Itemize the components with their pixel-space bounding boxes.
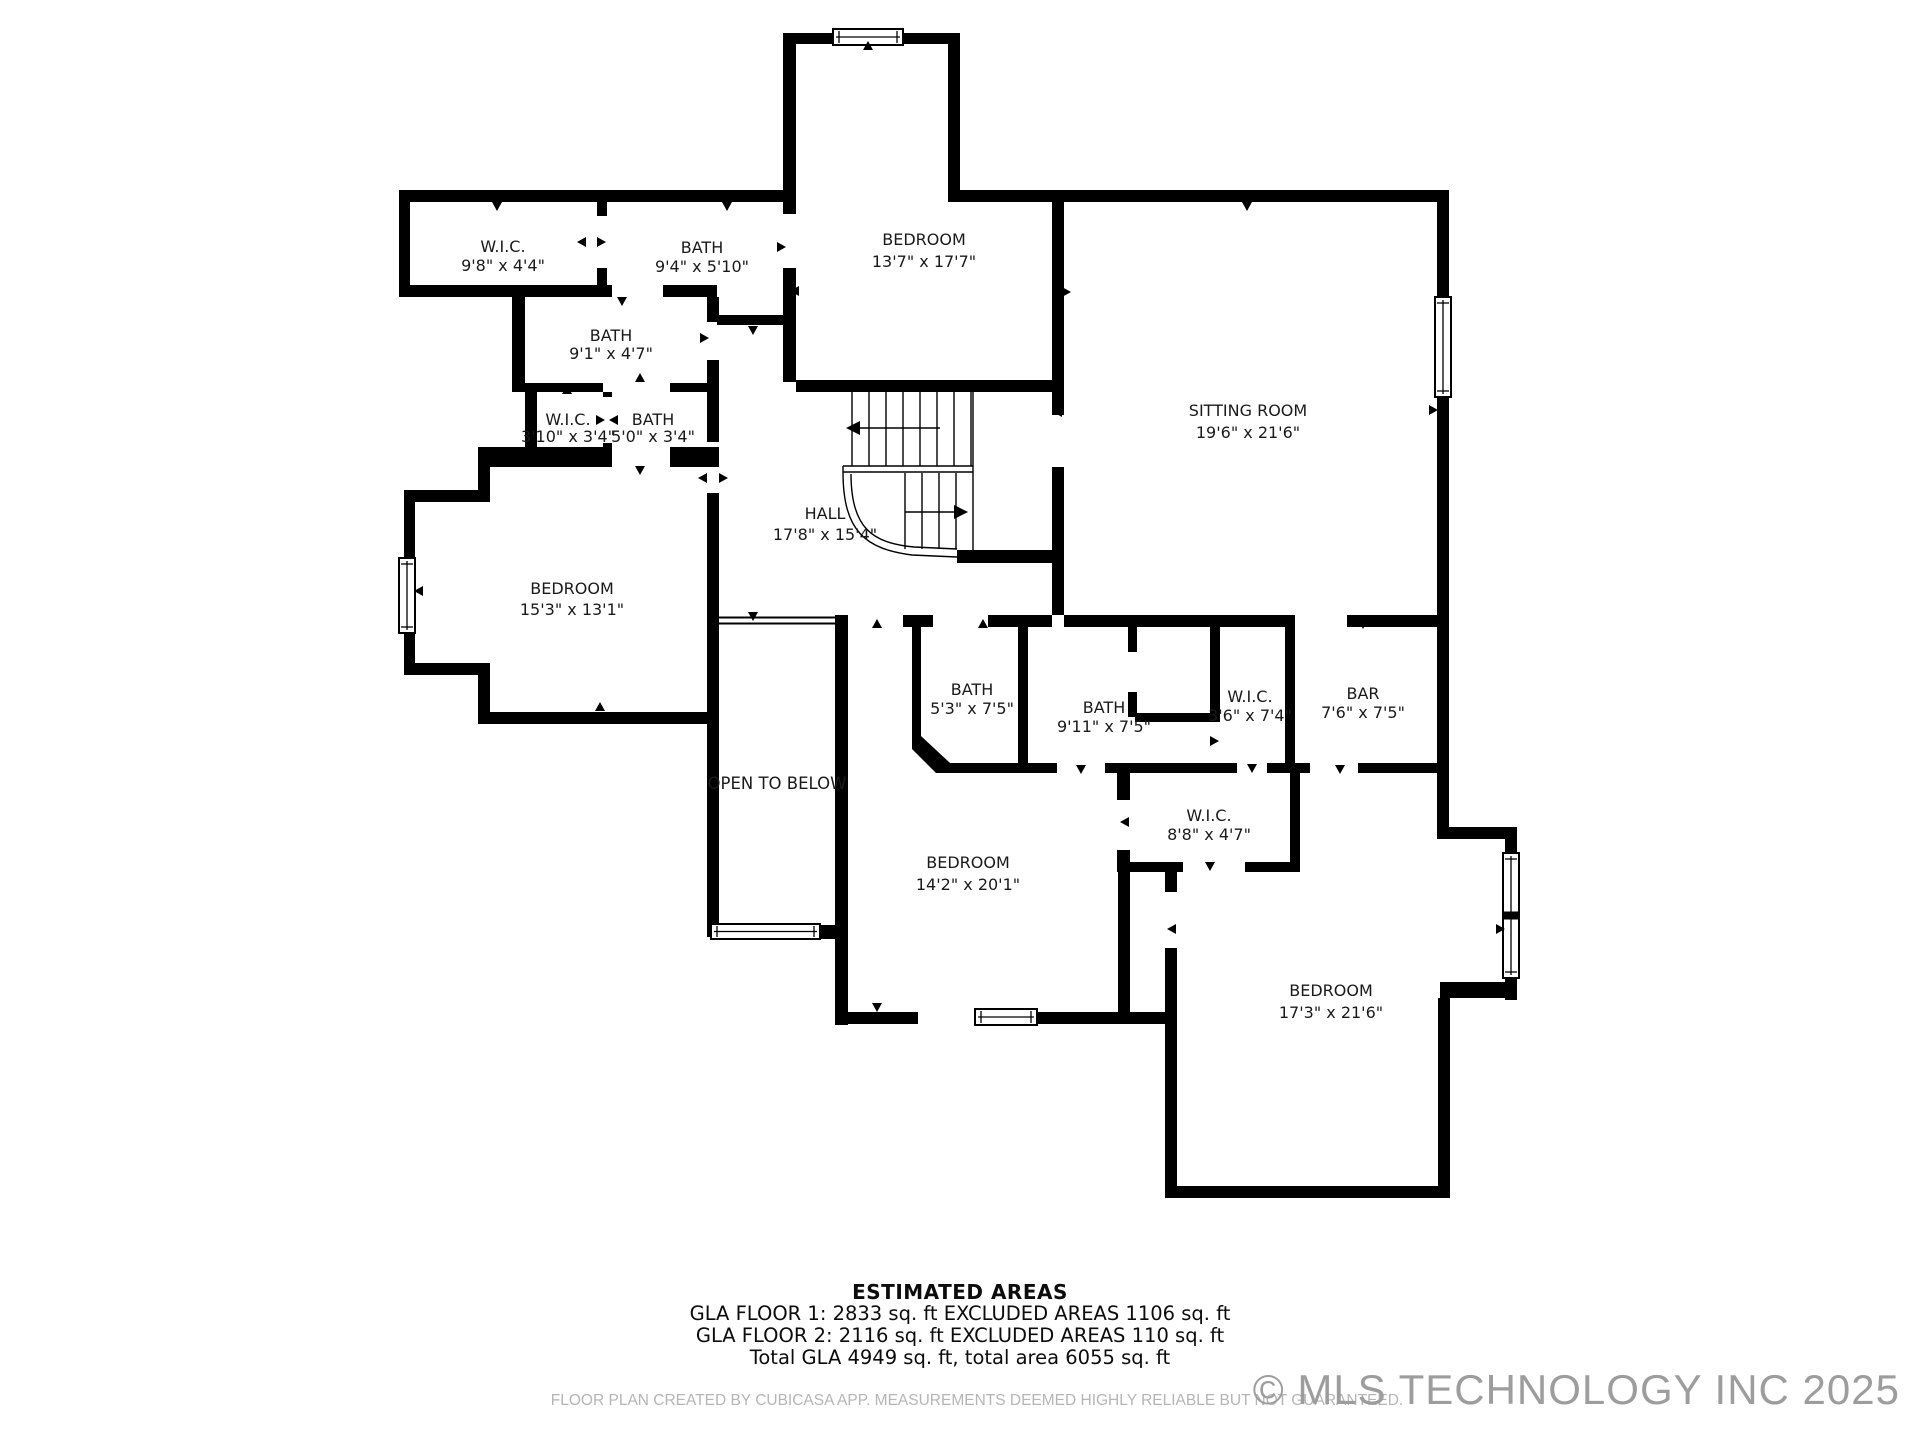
room-name-12: BAR xyxy=(1346,684,1379,703)
door-marker-icon xyxy=(609,415,618,425)
door-marker-icon xyxy=(1062,287,1071,297)
room-name-3: BATH xyxy=(590,326,632,345)
room-name-0: W.I.C. xyxy=(480,237,525,256)
door-marker-icon xyxy=(596,415,605,425)
gla-floor1: GLA FLOOR 1: 2833 sq. ft EXCLUDED AREAS … xyxy=(0,1303,1920,1325)
room-dims-0: 9'8" x 4'4" xyxy=(461,256,545,275)
room-name-8: SITTING ROOM xyxy=(1189,401,1307,420)
door-marker-icon xyxy=(595,702,605,711)
room-dims-8: 19'6" x 21'6" xyxy=(1196,423,1300,442)
door-marker-icon xyxy=(700,333,709,343)
door-marker-icon xyxy=(777,242,786,252)
room-name-10: BATH xyxy=(1083,698,1125,717)
room-dims-1: 9'4" x 5'10" xyxy=(655,257,749,276)
mls-watermark: © MLS TECHNOLOGY INC 2025 xyxy=(1253,1366,1900,1414)
door-marker-icon xyxy=(698,473,707,483)
room-dims-4: 3'10" x 3'4" xyxy=(521,427,615,446)
door-marker-icon xyxy=(978,619,988,628)
door-marker-icon xyxy=(1429,405,1438,415)
room-name-1: BATH xyxy=(681,238,723,257)
door-marker-icon xyxy=(1076,765,1086,774)
room-dims-6: 15'3" x 13'1" xyxy=(520,600,624,619)
room-name-6: BEDROOM xyxy=(530,579,614,598)
estimated-areas-title: ESTIMATED AREAS xyxy=(0,1281,1920,1303)
room-dims-13: 8'8" x 4'7" xyxy=(1167,825,1251,844)
floor-plan-drawing: W.I.C.9'8" x 4'4"BATH9'4" x 5'10"BEDROOM… xyxy=(0,0,1920,1440)
room-name-15: BEDROOM xyxy=(1289,981,1373,1000)
open-to-below-railing xyxy=(719,618,838,624)
door-marker-icon xyxy=(597,237,606,247)
window-symbol xyxy=(711,924,820,939)
open-to-below-label: OPEN TO BELOW xyxy=(708,774,847,793)
door-marker-icon xyxy=(635,466,645,475)
door-marker-icon xyxy=(872,1003,882,1012)
door-marker-icon xyxy=(1335,765,1345,774)
door-marker-icon xyxy=(492,202,502,211)
door-marker-icon xyxy=(1167,924,1176,934)
window-symbol xyxy=(1503,853,1519,978)
estimated-areas-block: ESTIMATED AREAS GLA FLOOR 1: 2833 sq. ft… xyxy=(0,1281,1920,1369)
room-name-2: BEDROOM xyxy=(882,230,966,249)
room-name-9: BATH xyxy=(951,680,993,699)
gla-floor2: GLA FLOOR 2: 2116 sq. ft EXCLUDED AREAS … xyxy=(0,1325,1920,1347)
room-name-13: W.I.C. xyxy=(1186,806,1231,825)
window-symbol xyxy=(975,1009,1037,1025)
door-marker-icon xyxy=(1205,862,1215,871)
window-symbol xyxy=(399,558,415,633)
door-marker-icon xyxy=(617,297,627,306)
room-dims-10: 9'11" x 7'5" xyxy=(1057,717,1151,736)
room-dims-15: 17'3" x 21'6" xyxy=(1279,1003,1383,1022)
door-marker-icon xyxy=(1210,736,1219,746)
door-marker-icon xyxy=(635,373,645,382)
door-marker-icon xyxy=(1242,202,1252,211)
door-marker-icon xyxy=(577,237,586,247)
room-dims-2: 13'7" x 17'7" xyxy=(872,252,976,271)
room-dims-5: 5'0" x 3'4" xyxy=(611,427,695,446)
room-dims-11: 3'6" x 7'4" xyxy=(1208,706,1292,725)
room-dims-3: 9'1" x 4'7" xyxy=(569,344,653,363)
door-marker-icon xyxy=(722,202,732,211)
door-marker-icon xyxy=(719,473,728,483)
room-dims-7: 17'8" x 15'4" xyxy=(773,525,877,544)
room-dims-12: 7'6" x 7'5" xyxy=(1321,703,1405,722)
door-marker-icon xyxy=(1247,764,1257,773)
room-dims-9: 5'3" x 7'5" xyxy=(930,699,1014,718)
floor-plan-page: W.I.C.9'8" x 4'4"BATH9'4" x 5'10"BEDROOM… xyxy=(0,0,1920,1440)
room-name-7: HALL xyxy=(805,504,846,523)
room-name-11: W.I.C. xyxy=(1227,687,1272,706)
window-symbol xyxy=(1435,297,1451,397)
door-marker-icon xyxy=(872,619,882,628)
door-marker-icon xyxy=(1120,817,1129,827)
room-name-14: BEDROOM xyxy=(926,853,1010,872)
door-marker-icon xyxy=(748,326,758,335)
room-dims-14: 14'2" x 20'1" xyxy=(916,875,1020,894)
